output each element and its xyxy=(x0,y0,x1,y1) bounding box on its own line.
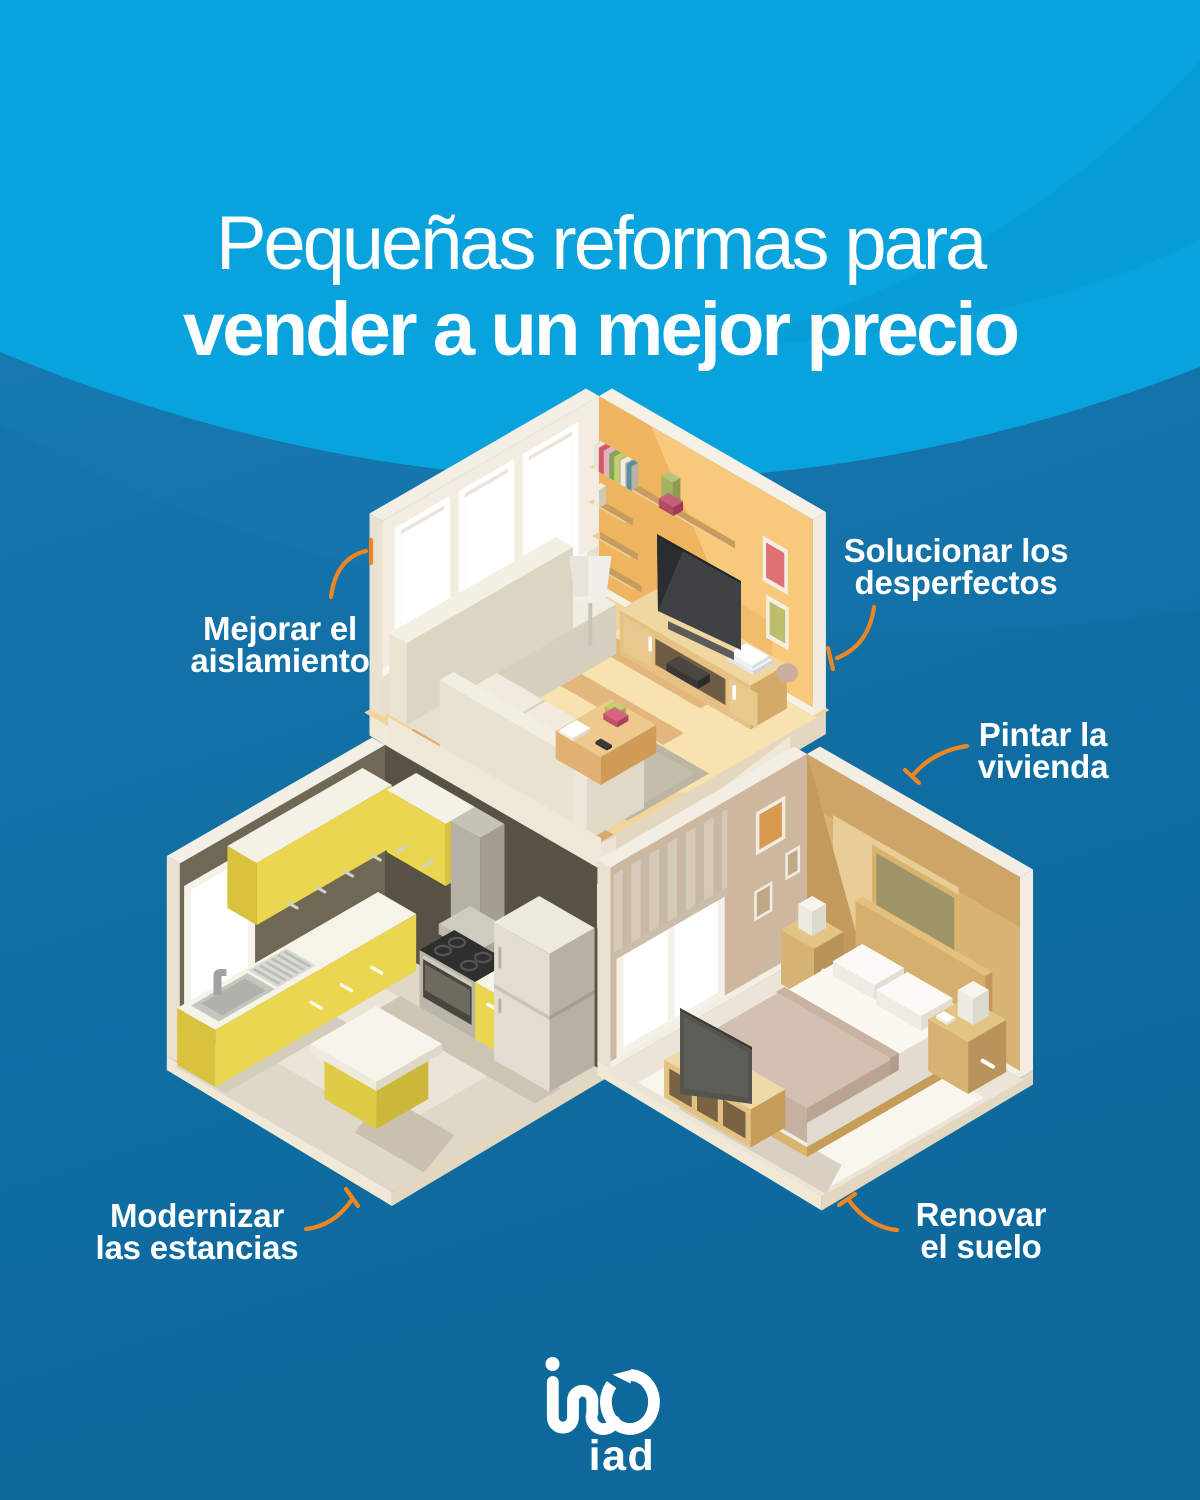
svg-text:el suelo: el suelo xyxy=(920,1228,1041,1265)
svg-text:vivienda: vivienda xyxy=(978,748,1109,785)
svg-text:Pequeñas reformas para: Pequeñas reformas para xyxy=(216,201,988,286)
svg-text:vender a un mejor precio: vender a un mejor precio xyxy=(183,287,1018,372)
svg-text:aislamiento: aislamiento xyxy=(190,642,369,679)
svg-text:las estancias: las estancias xyxy=(96,1229,299,1266)
svg-text:iad: iad xyxy=(589,1432,656,1480)
svg-text:desperfectos: desperfectos xyxy=(854,564,1057,601)
